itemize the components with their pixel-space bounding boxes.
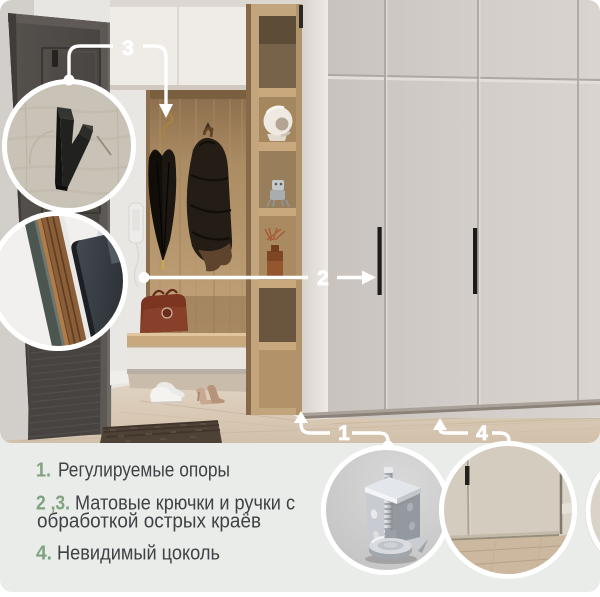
svg-text:3: 3 [122, 37, 134, 60]
svg-text:1.Регулируемые опоры: 1.Регулируемые опоры [36, 459, 230, 482]
svg-text:4.Невидимый цоколь: 4.Невидимый цоколь [36, 542, 220, 565]
svg-text:1: 1 [338, 422, 350, 445]
svg-text:обработкой острых краёв: обработкой острых краёв [37, 510, 261, 533]
svg-text:4: 4 [476, 422, 488, 445]
svg-text:2: 2 [317, 267, 329, 290]
